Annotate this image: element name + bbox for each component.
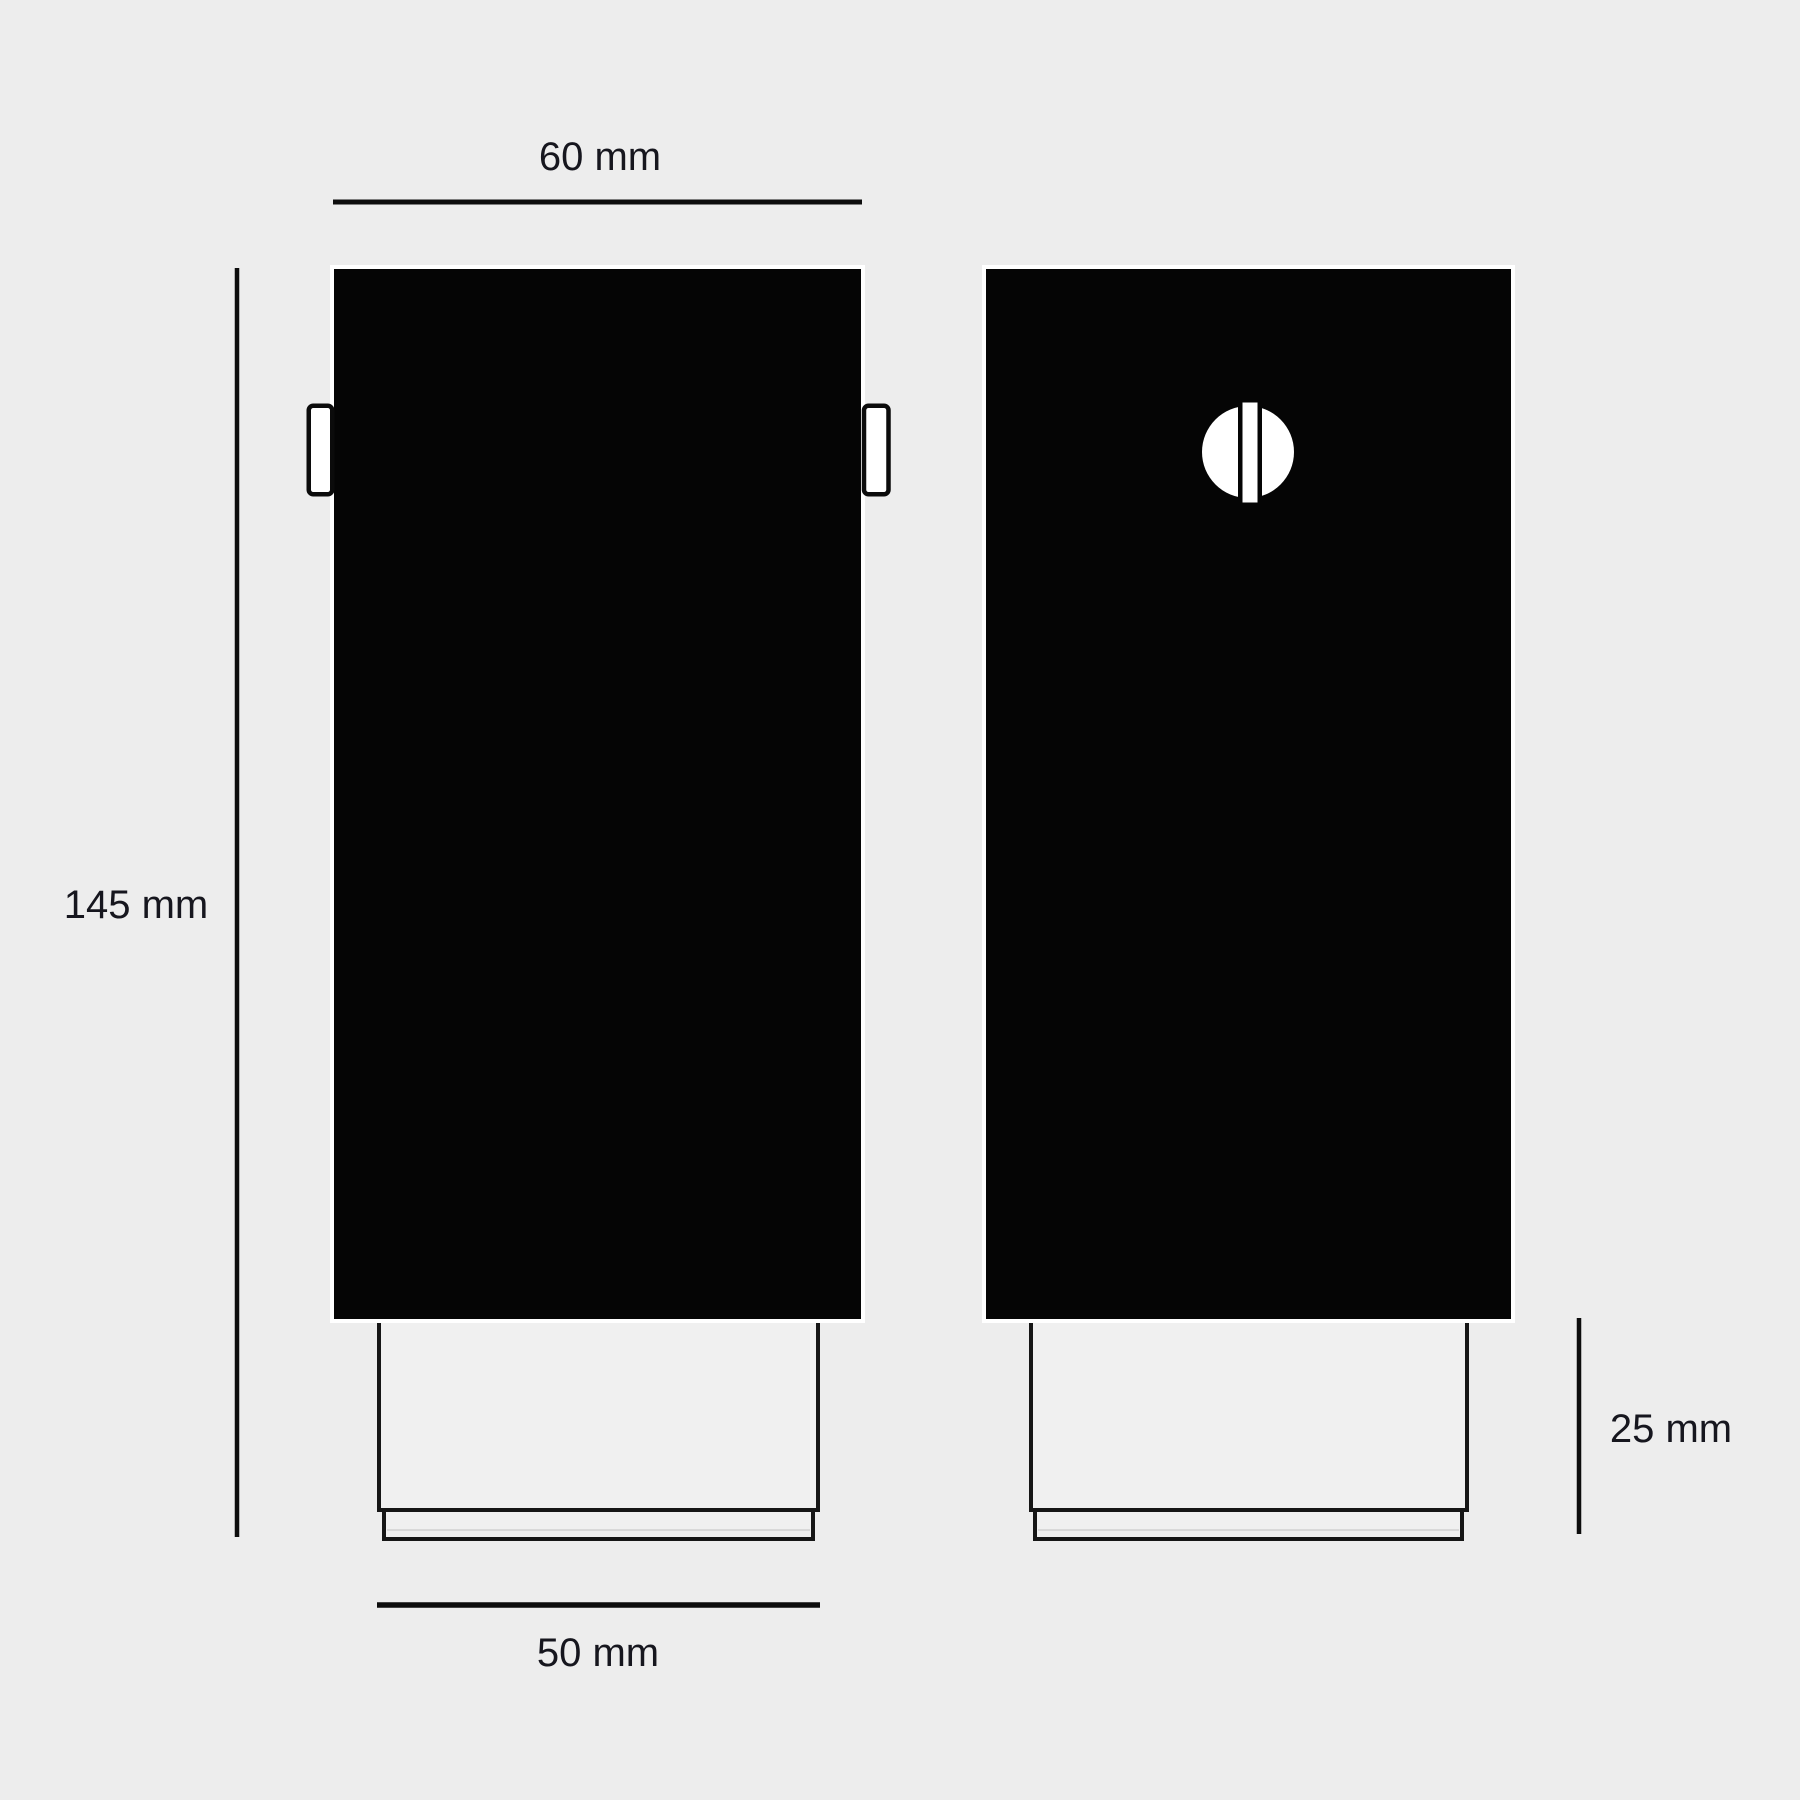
svg-text:60 mm: 60 mm [539, 135, 661, 179]
svg-text:50 mm: 50 mm [537, 1631, 659, 1675]
svg-text:145 mm: 145 mm [64, 883, 209, 927]
svg-text:25 mm: 25 mm [1610, 1407, 1732, 1451]
